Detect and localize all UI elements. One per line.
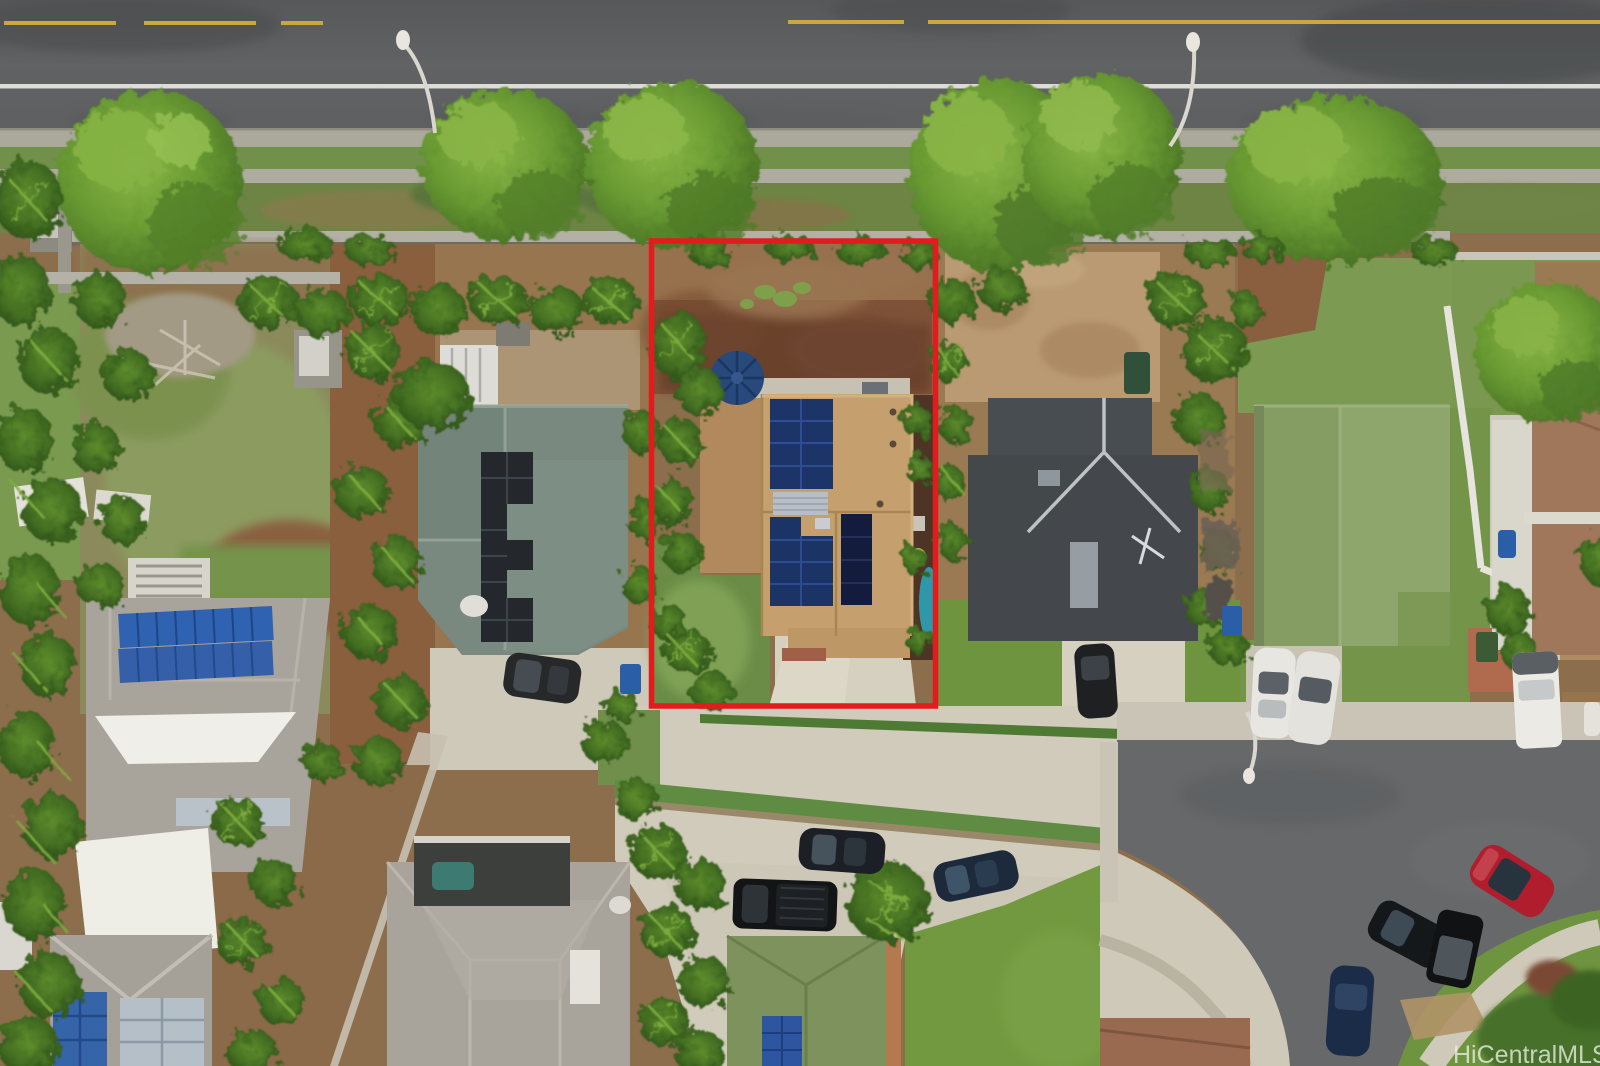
svg-text:HiCentralMLS: HiCentralMLS (1453, 1041, 1600, 1066)
